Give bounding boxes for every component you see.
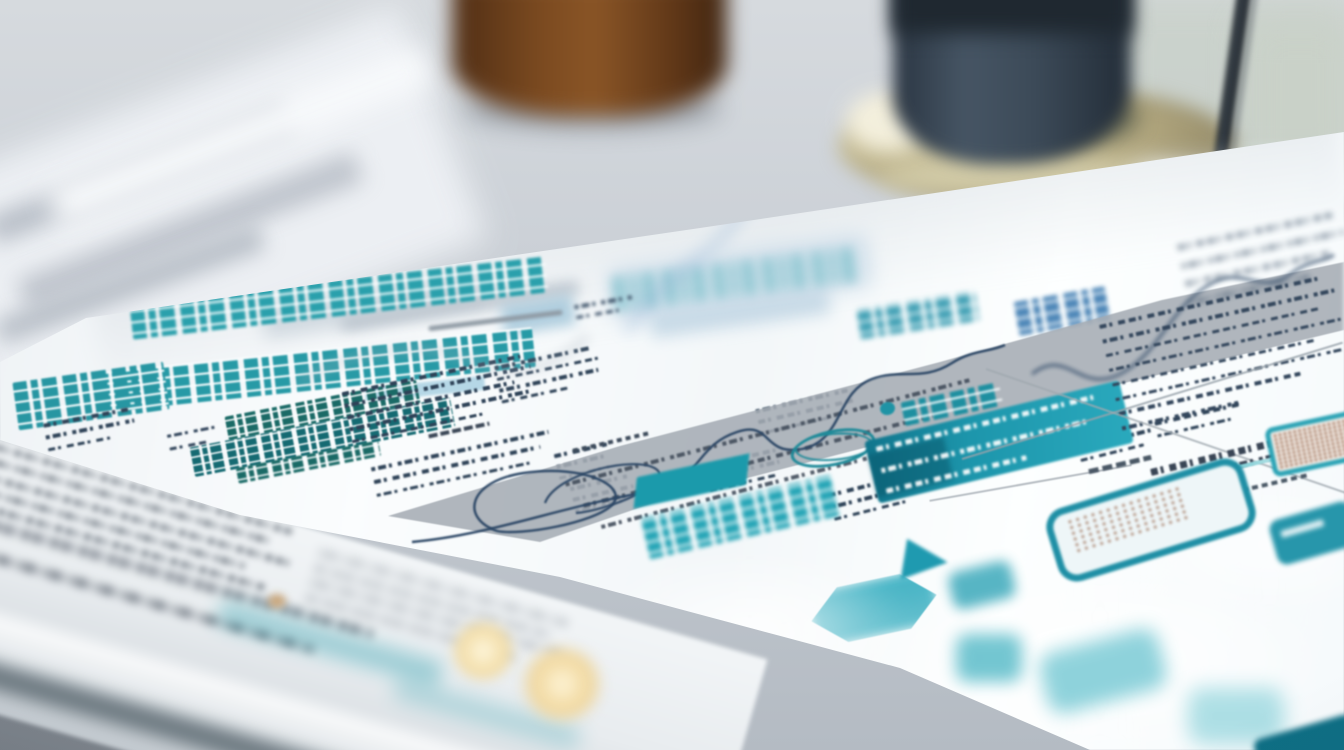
photo-canvas [0,0,1344,750]
photo-card-texture [1272,416,1344,469]
wooden-jar-blur [452,0,727,116]
bokeh-highlight-1 [452,622,514,680]
bokeh-dot [268,594,286,608]
cup-top-shade [893,0,1131,34]
teal-blob-2 [956,634,1022,682]
scribble-ellipse-inner [794,429,874,464]
side-card-mark [1280,519,1324,538]
bokeh-highlight-2 [522,648,602,720]
chart-gray-swirl-blur [298,336,588,382]
